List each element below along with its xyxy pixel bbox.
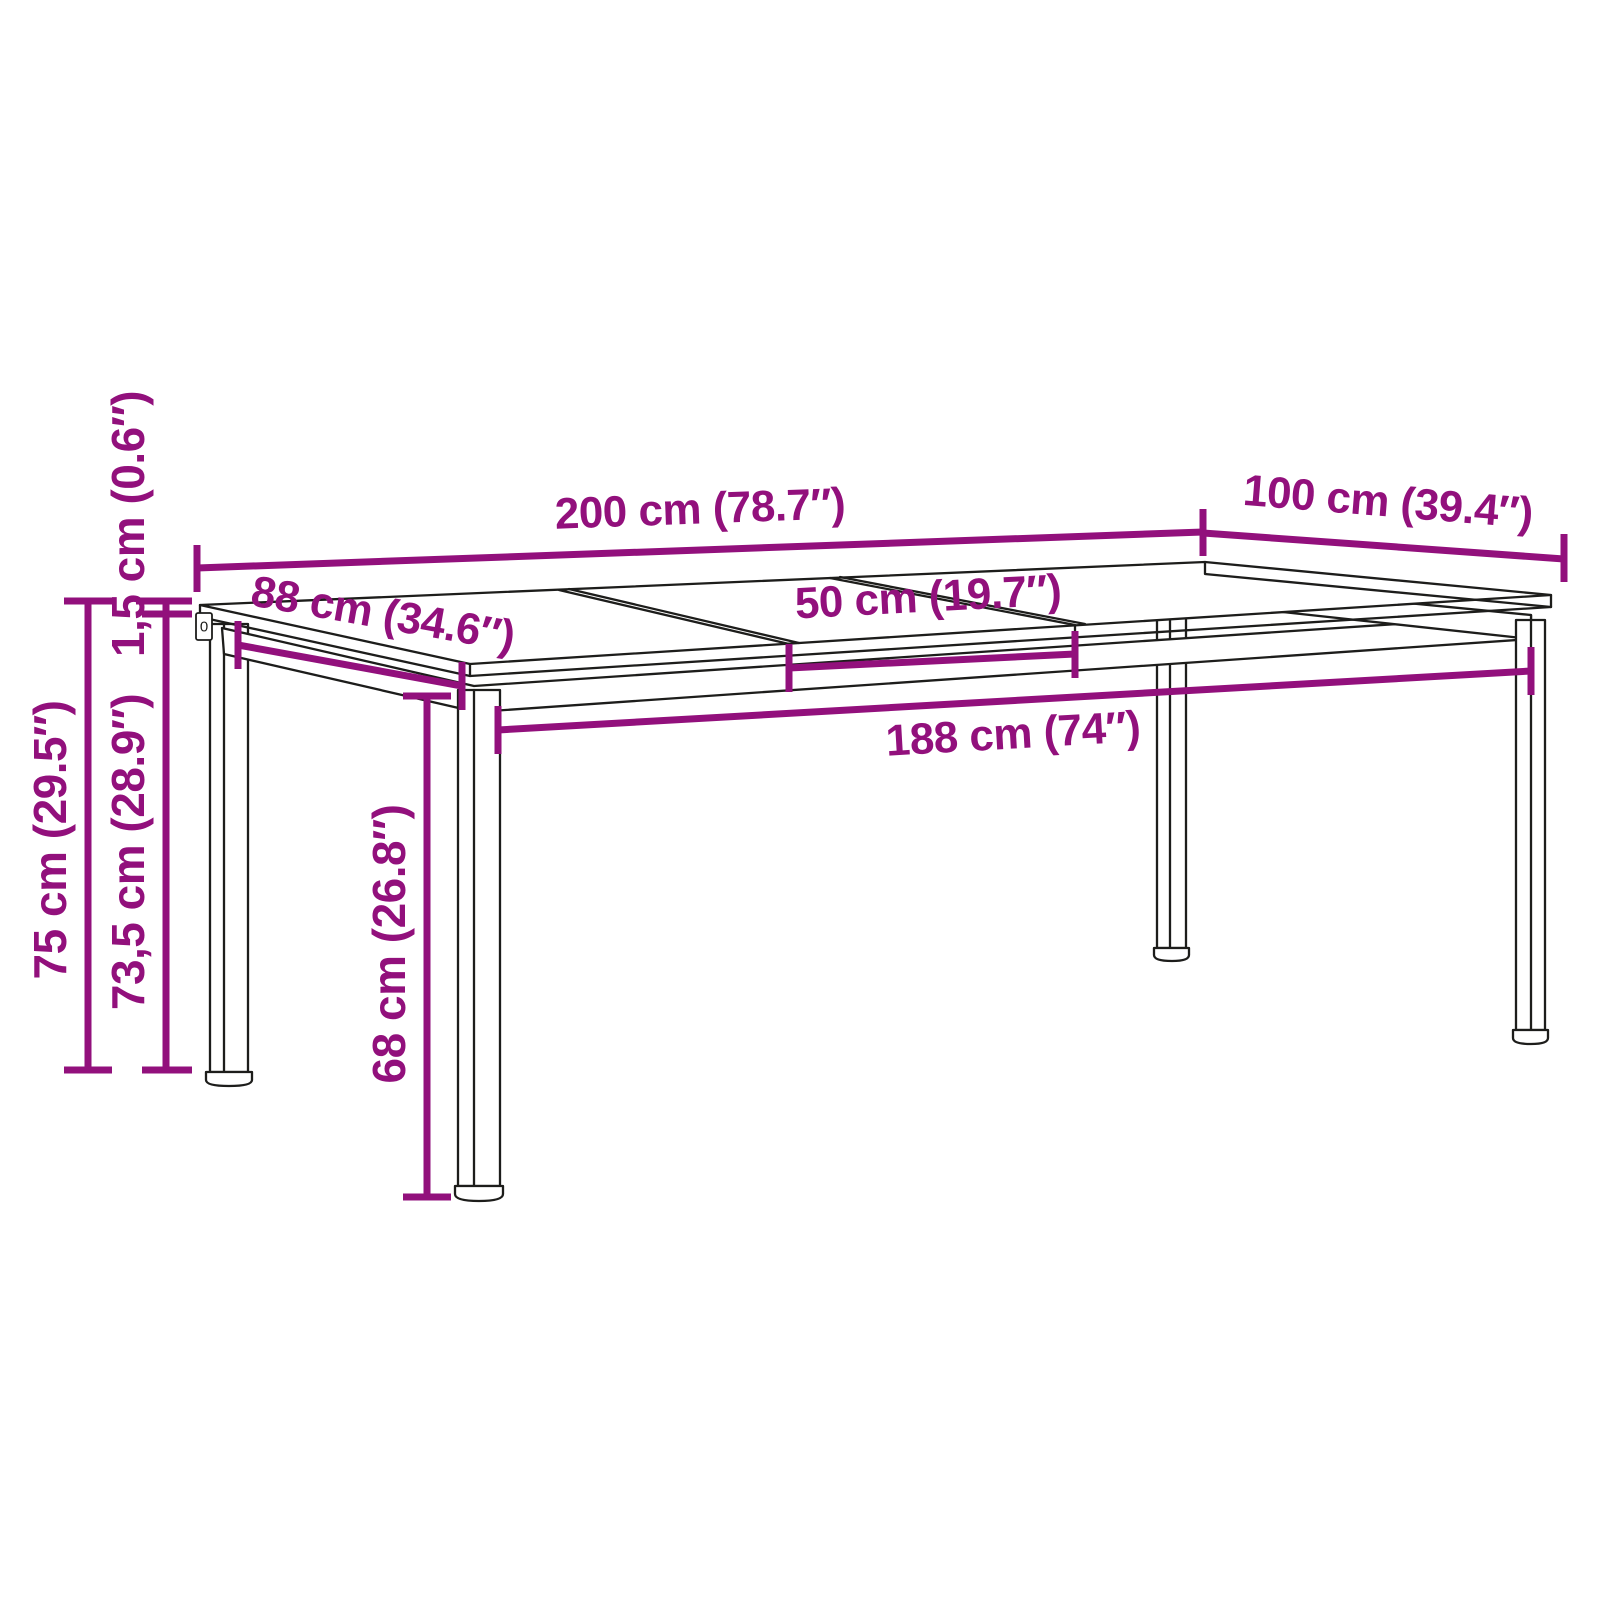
- dim-underside-height-label: 73,5 cm (28.9″): [102, 694, 154, 1010]
- table-diagram-svg: 0 200 cm (78.7″) 100 cm (39.4″) 88 cm (3…: [0, 0, 1600, 1600]
- dim-total-height-label: 75 cm (29.5″): [24, 701, 76, 980]
- dim-top-width-label: 100 cm (39.4″): [1241, 466, 1534, 538]
- dim-total-height: 75 cm (29.5″): [24, 601, 112, 1070]
- dim-top-thickness-label: 1,5 cm (0.6″): [102, 391, 154, 657]
- dim-leg-spacing-length-label: 188 cm (74″): [884, 702, 1141, 766]
- dim-leg-clearance: 68 cm (26.8″): [363, 696, 451, 1197]
- leg-plate: 0: [196, 613, 212, 640]
- table-leg-back-left: [206, 624, 252, 1086]
- dim-top-length-label: 200 cm (78.7″): [554, 479, 846, 539]
- dimension-diagram: 0 200 cm (78.7″) 100 cm (39.4″) 88 cm (3…: [0, 0, 1600, 1600]
- table-leg-front-left: [455, 690, 503, 1201]
- dim-underside-height: 73,5 cm (28.9″): [102, 601, 192, 1070]
- dim-top-width: 100 cm (39.4″): [1203, 466, 1564, 582]
- leg-plate-mark: 0: [200, 619, 208, 636]
- dim-leg-clearance-label: 68 cm (26.8″): [363, 805, 415, 1084]
